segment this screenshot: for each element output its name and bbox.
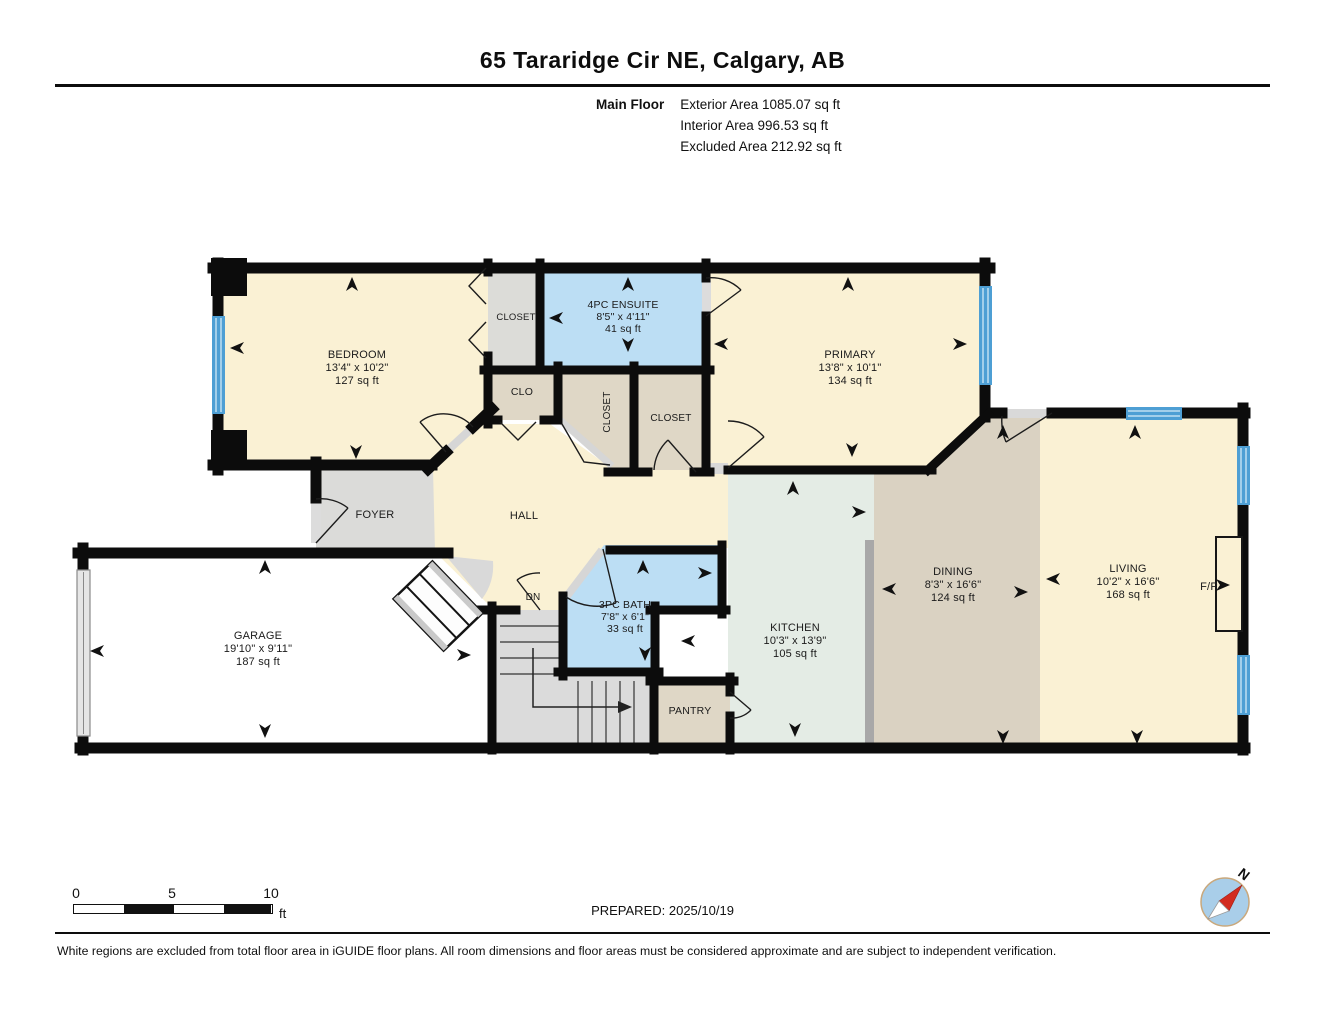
room-label-primary-closet: CLOSET <box>650 413 691 425</box>
scale-tick-10: 10 <box>263 885 279 901</box>
footer-disclaimer: White regions are excluded from total fl… <box>57 944 1056 958</box>
compass-icon <box>1201 878 1249 926</box>
room-label-garage: GARAGE 19'10" x 9'11" 187 sq ft <box>224 630 292 669</box>
room-label-ensuite: 4PC ENSUITE 8'5" x 4'11" 41 sq ft <box>587 299 658 335</box>
room-label-hall: HALL <box>510 510 538 523</box>
living-right-upper-window <box>1237 446 1250 505</box>
scale-unit: ft <box>279 906 286 921</box>
kitchen-floor <box>728 470 874 748</box>
room-label-living: LIVING 10'2" x 16'6" 168 sq ft <box>1097 563 1160 602</box>
room-label-clo: CLO <box>511 386 533 398</box>
room-label-fireplace: F/P <box>1200 581 1218 594</box>
room-label-bath: 3PC BATH 7'8" x 6'1" 33 sq ft <box>599 599 651 635</box>
kitchen-counter <box>865 540 874 748</box>
room-label-hall-closet: CLOSET <box>602 391 614 432</box>
foyer-floor <box>316 468 435 548</box>
living-right-lower-window <box>1237 655 1250 715</box>
room-label-primary: PRIMARY 13'8" x 10'1" 134 sq ft <box>819 349 882 388</box>
room-label-bedroom: BEDROOM 13'4" x 10'2" 127 sq ft <box>326 349 389 388</box>
prepared-date: PREPARED: 2025/10/19 <box>591 903 734 918</box>
scale-tick-0: 0 <box>72 885 80 901</box>
room-label-pantry: PANTRY <box>669 705 712 717</box>
room-label-foyer: FOYER <box>356 509 395 522</box>
footer-divider <box>55 932 1270 934</box>
room-label-dining: DINING 8'3" x 16'6" 124 sq ft <box>925 566 982 605</box>
living-top-window <box>1126 407 1182 420</box>
floorplan-drawing <box>0 0 1325 1024</box>
floorplan-page: 65 Tararidge Cir NE, Calgary, AB Main Fl… <box>0 0 1325 1024</box>
garage-door <box>77 570 90 736</box>
primary-window <box>979 286 992 385</box>
bedroom-window <box>212 316 225 414</box>
room-label-dn: DN <box>526 592 541 604</box>
scale-bar-segments <box>73 904 273 914</box>
room-label-bedroom-closet: CLOSET <box>496 311 535 324</box>
scale-tick-5: 5 <box>168 885 176 901</box>
room-label-kitchen: KITCHEN 10'3" x 13'9" 105 sq ft <box>764 622 827 661</box>
